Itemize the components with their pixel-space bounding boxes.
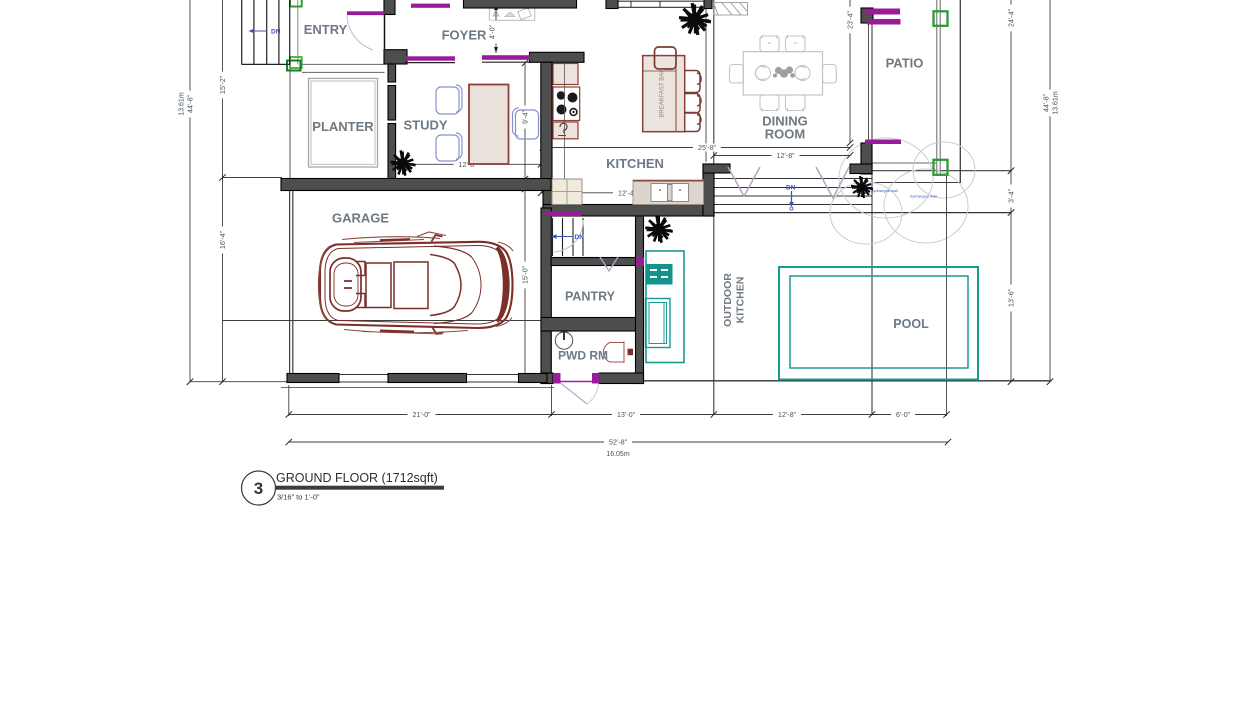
- svg-text:44’-8”: 44’-8”: [188, 94, 195, 113]
- svg-text:23’-4”: 23’-4”: [848, 10, 855, 29]
- svg-text:13’-6”: 13’-6”: [1009, 288, 1016, 307]
- svg-text:PANTRY: PANTRY: [565, 290, 616, 304]
- svg-text:52’-8”: 52’-8”: [609, 440, 628, 447]
- svg-text:24’-4”: 24’-4”: [1009, 8, 1016, 27]
- svg-text:4’-0”: 4’-0”: [490, 24, 497, 39]
- svg-text:16’-4”: 16’-4”: [220, 230, 227, 249]
- svg-text:12’-8”: 12’-8”: [777, 153, 796, 160]
- svg-text:13.61m: 13.61m: [179, 92, 186, 116]
- svg-text:PATIO: PATIO: [886, 56, 924, 71]
- svg-text:25’-8”: 25’-8”: [698, 145, 717, 152]
- svg-text:12’-8”: 12’-8”: [778, 412, 797, 419]
- svg-text:BREAKFAST BAR: BREAKFAST BAR: [660, 68, 666, 118]
- svg-text:16.05m: 16.05m: [606, 451, 630, 458]
- svg-text:21’-0”: 21’-0”: [413, 412, 432, 419]
- svg-text:ROOM: ROOM: [765, 127, 805, 142]
- svg-text:KITCHEN: KITCHEN: [606, 156, 664, 171]
- svg-text:PLANTER: PLANTER: [312, 119, 374, 134]
- svg-text:ENTRY: ENTRY: [304, 22, 348, 37]
- svg-text:15’-2”: 15’-2”: [220, 75, 227, 94]
- svg-text:44’-8”: 44’-8”: [1044, 93, 1051, 112]
- svg-text:13.61m: 13.61m: [1053, 91, 1060, 115]
- svg-text:3’-4”: 3’-4”: [1009, 188, 1016, 203]
- svg-text:GROUND FLOOR (1712sqft): GROUND FLOOR (1712sqft): [276, 471, 438, 485]
- svg-text:hydrangea wall: hydrangea wall: [910, 194, 937, 199]
- svg-text:3/16” to 1’-0”: 3/16” to 1’-0”: [277, 493, 320, 502]
- svg-text:KITCHEN: KITCHEN: [735, 277, 747, 324]
- svg-text:DN: DN: [575, 234, 585, 241]
- svg-text:DN: DN: [786, 185, 796, 192]
- svg-text:9’-4”: 9’-4”: [523, 109, 530, 124]
- svg-text:FOYER: FOYER: [442, 28, 487, 43]
- svg-text:DN: DN: [271, 29, 281, 36]
- svg-text:6’-0”: 6’-0”: [896, 412, 911, 419]
- svg-text:STUDY: STUDY: [403, 118, 447, 133]
- svg-text:POOL: POOL: [893, 317, 929, 331]
- svg-text:13’-0”: 13’-0”: [617, 412, 636, 419]
- svg-text:PWD RM: PWD RM: [558, 349, 608, 363]
- svg-text:GARAGE: GARAGE: [332, 211, 389, 226]
- svg-text:3: 3: [254, 479, 263, 498]
- svg-text:15’-0”: 15’-0”: [523, 265, 530, 284]
- svg-text:OUTDOOR: OUTDOOR: [722, 273, 734, 327]
